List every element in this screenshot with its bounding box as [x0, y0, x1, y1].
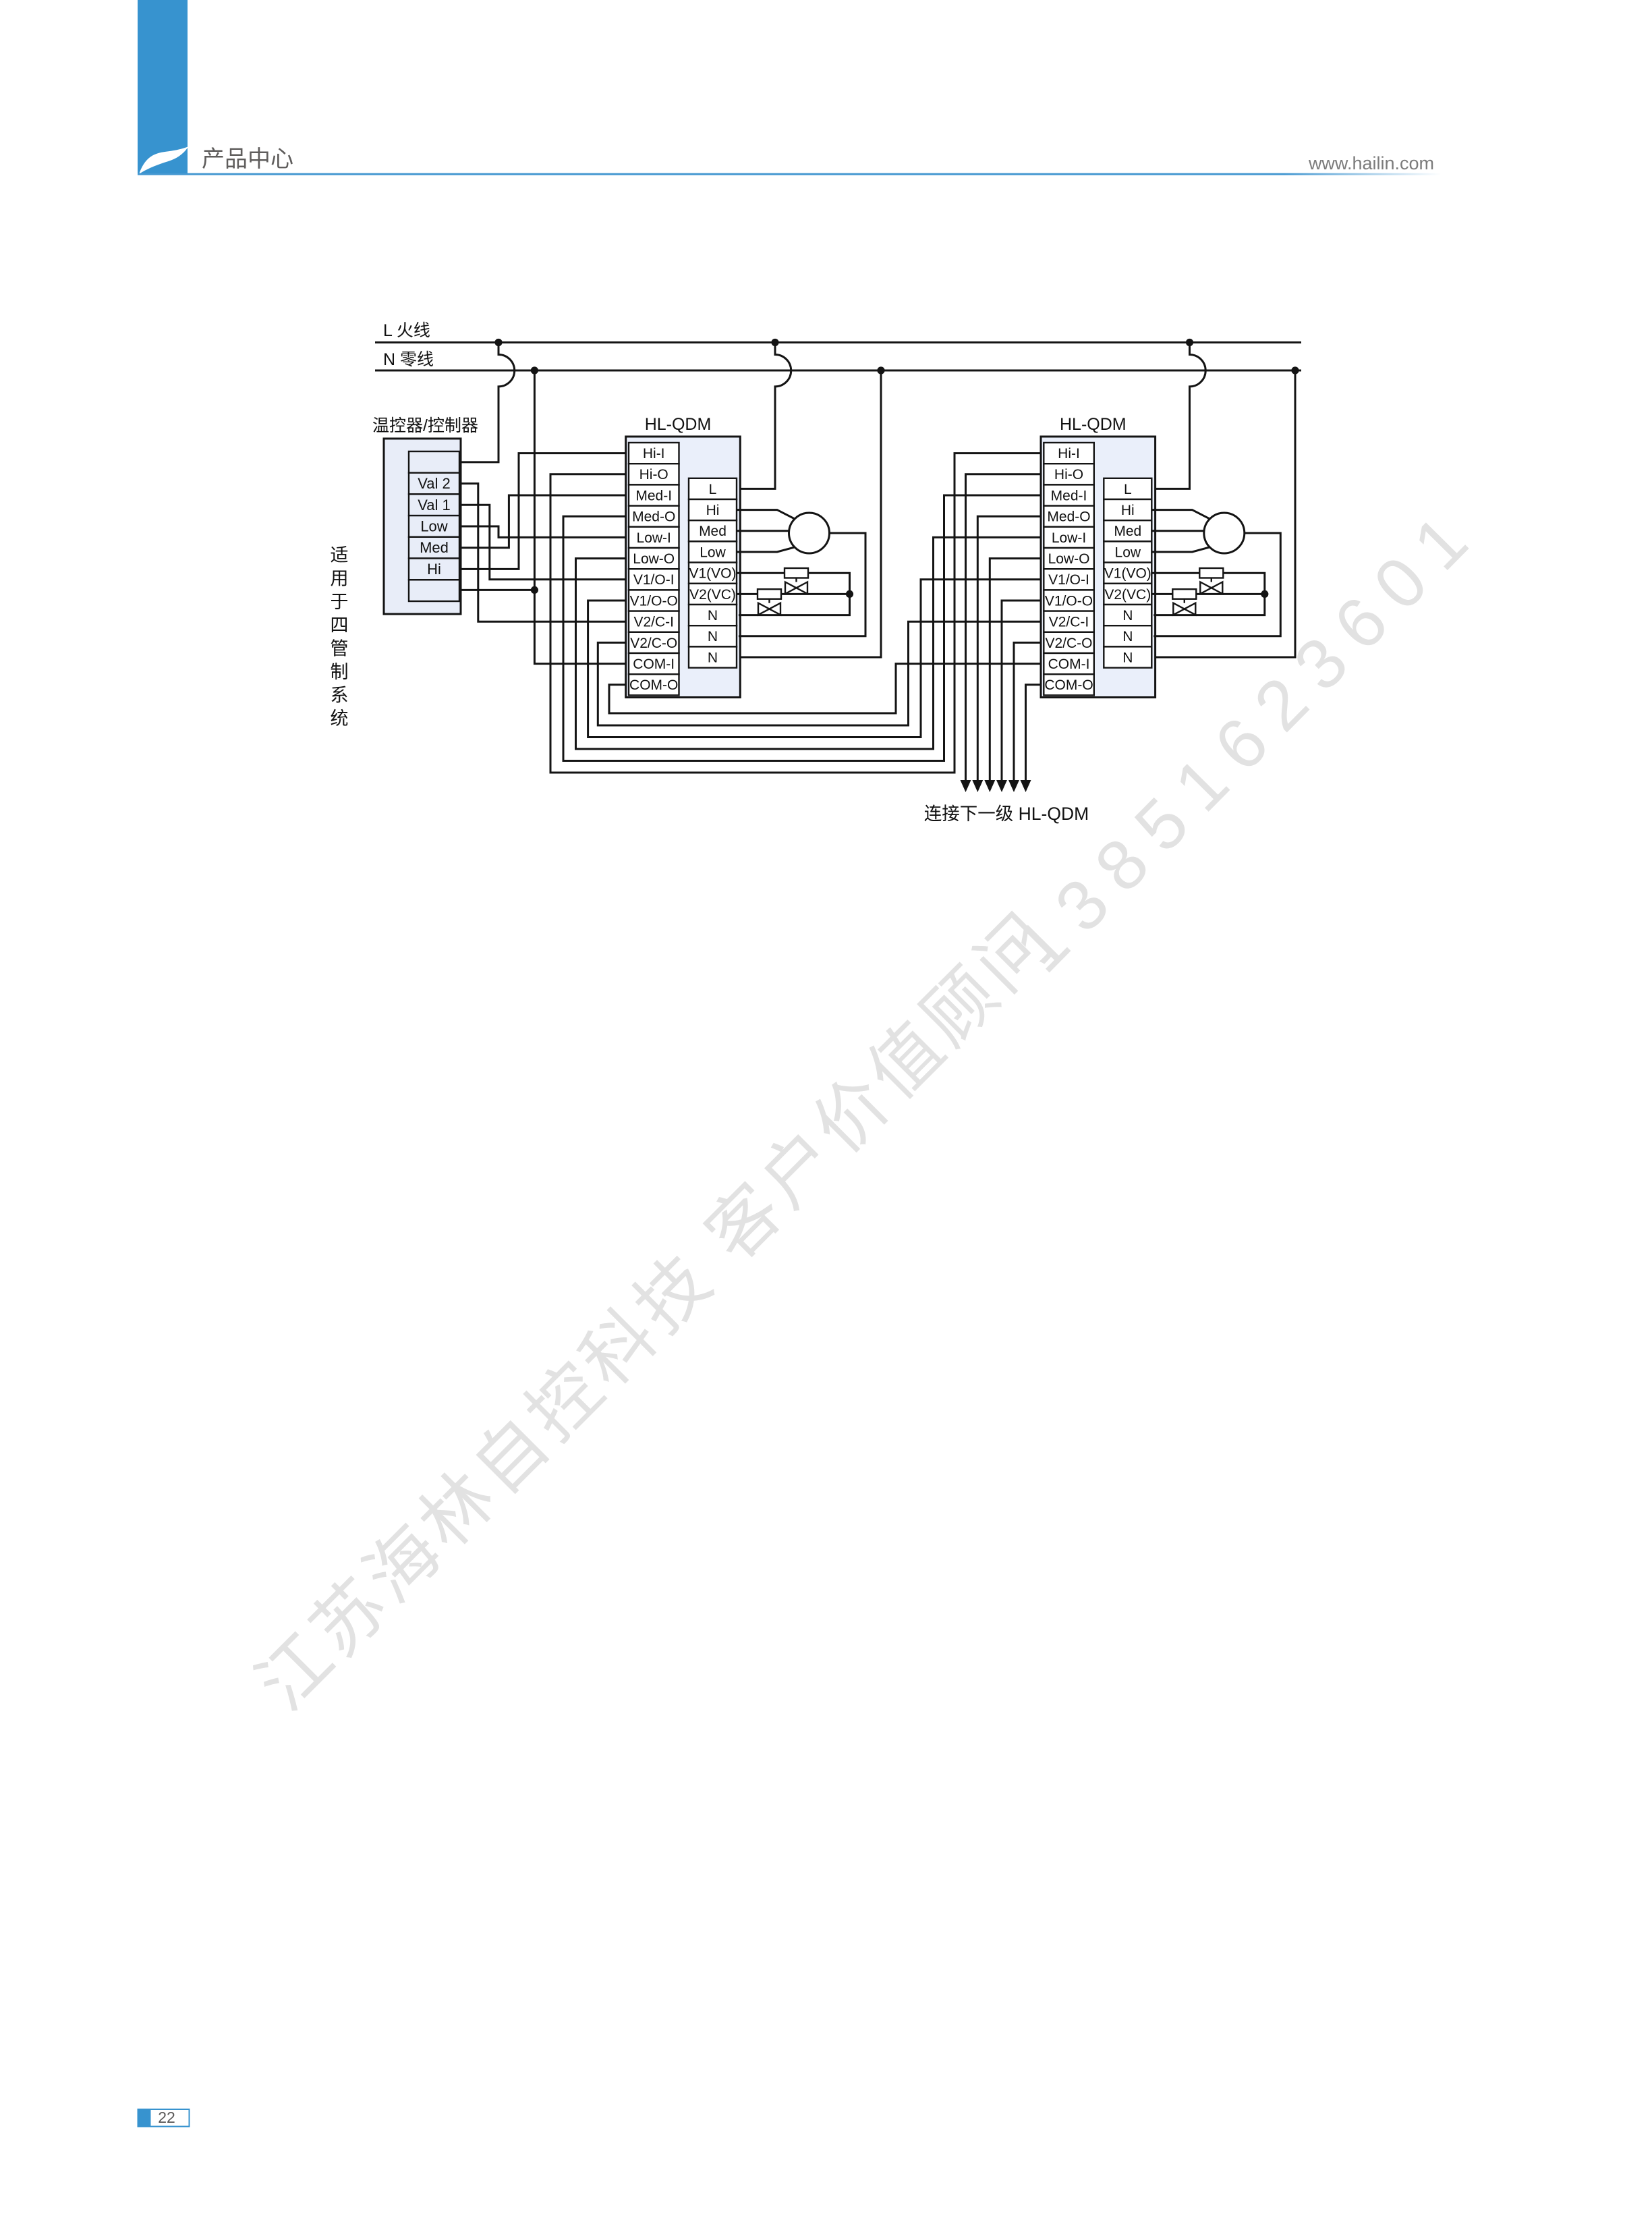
svg-text:温控器/控制器: 温控器/控制器	[372, 416, 478, 435]
svg-text:Med-O: Med-O	[632, 509, 675, 525]
svg-text:V1/O-I: V1/O-I	[633, 572, 675, 588]
svg-text:HL-QDM: HL-QDM	[1060, 415, 1127, 434]
svg-text:管: 管	[331, 638, 349, 659]
svg-text:V1(VO): V1(VO)	[1104, 566, 1151, 582]
svg-text:Low-O: Low-O	[633, 551, 675, 567]
svg-text:Med: Med	[1114, 524, 1141, 539]
svg-text:V1/O-I: V1/O-I	[1048, 572, 1089, 588]
svg-text:统: 统	[331, 708, 349, 729]
svg-text:L 火线: L 火线	[383, 321, 430, 340]
svg-text:COM-I: COM-I	[1048, 657, 1090, 672]
svg-text:于: 于	[331, 592, 349, 612]
svg-text:V2/C-I: V2/C-I	[1049, 615, 1089, 630]
svg-text:Hi: Hi	[706, 503, 720, 518]
svg-text:N 零线: N 零线	[383, 350, 434, 369]
svg-text:N: N	[708, 608, 718, 623]
svg-text:V2/C-O: V2/C-O	[630, 636, 677, 651]
svg-text:N: N	[1122, 608, 1133, 623]
svg-text:Med-I: Med-I	[635, 488, 672, 503]
svg-text:制: 制	[331, 662, 349, 682]
svg-text:Hi-I: Hi-I	[643, 446, 665, 462]
svg-text:系: 系	[331, 686, 349, 706]
svg-text:N: N	[708, 629, 718, 644]
svg-text:Hi: Hi	[427, 561, 441, 578]
svg-text:Hi: Hi	[1121, 503, 1135, 518]
svg-text:用: 用	[331, 569, 349, 589]
svg-text:L: L	[709, 482, 717, 497]
svg-text:Low-I: Low-I	[637, 530, 671, 546]
svg-text:V1/O-O: V1/O-O	[630, 593, 678, 609]
svg-text:COM-O: COM-O	[629, 677, 678, 693]
svg-text:V2(VC): V2(VC)	[689, 587, 736, 603]
svg-text:Low: Low	[420, 518, 447, 535]
svg-text:产品中心: 产品中心	[202, 146, 293, 172]
svg-text:V1(VO): V1(VO)	[689, 566, 736, 582]
svg-text:Hi-O: Hi-O	[1054, 467, 1083, 482]
svg-text:Low: Low	[1115, 545, 1141, 560]
svg-text:Hi-I: Hi-I	[1058, 446, 1080, 462]
svg-text:V2/C-O: V2/C-O	[1045, 636, 1092, 651]
svg-text:Low-O: Low-O	[1048, 551, 1090, 567]
svg-text:Low: Low	[700, 545, 726, 560]
svg-text:Val 2: Val 2	[418, 475, 451, 492]
svg-text:N: N	[708, 650, 718, 665]
svg-text:适: 适	[331, 545, 349, 565]
svg-text:V1/O-O: V1/O-O	[1045, 593, 1093, 609]
svg-text:L: L	[1124, 482, 1132, 497]
svg-text:Med: Med	[420, 539, 449, 556]
svg-text:www.hailin.com: www.hailin.com	[1308, 153, 1434, 173]
svg-text:Val 1: Val 1	[418, 497, 451, 513]
svg-text:N: N	[1122, 629, 1133, 644]
svg-text:HL-QDM: HL-QDM	[645, 415, 712, 434]
svg-text:22: 22	[158, 2109, 175, 2126]
svg-text:Med-I: Med-I	[1051, 488, 1087, 503]
svg-text:V2(VC): V2(VC)	[1104, 587, 1151, 603]
svg-text:Low-I: Low-I	[1052, 530, 1086, 546]
svg-text:四: 四	[331, 615, 349, 636]
svg-text:Med-O: Med-O	[1047, 509, 1090, 525]
svg-text:N: N	[1122, 650, 1133, 665]
svg-text:V2/C-I: V2/C-I	[633, 615, 674, 630]
svg-text:COM-I: COM-I	[633, 657, 675, 672]
svg-text:Med: Med	[699, 524, 727, 539]
svg-text:Hi-O: Hi-O	[639, 467, 668, 482]
svg-text:连接下一级 HL-QDM: 连接下一级 HL-QDM	[924, 804, 1089, 824]
svg-text:COM-O: COM-O	[1044, 677, 1093, 693]
